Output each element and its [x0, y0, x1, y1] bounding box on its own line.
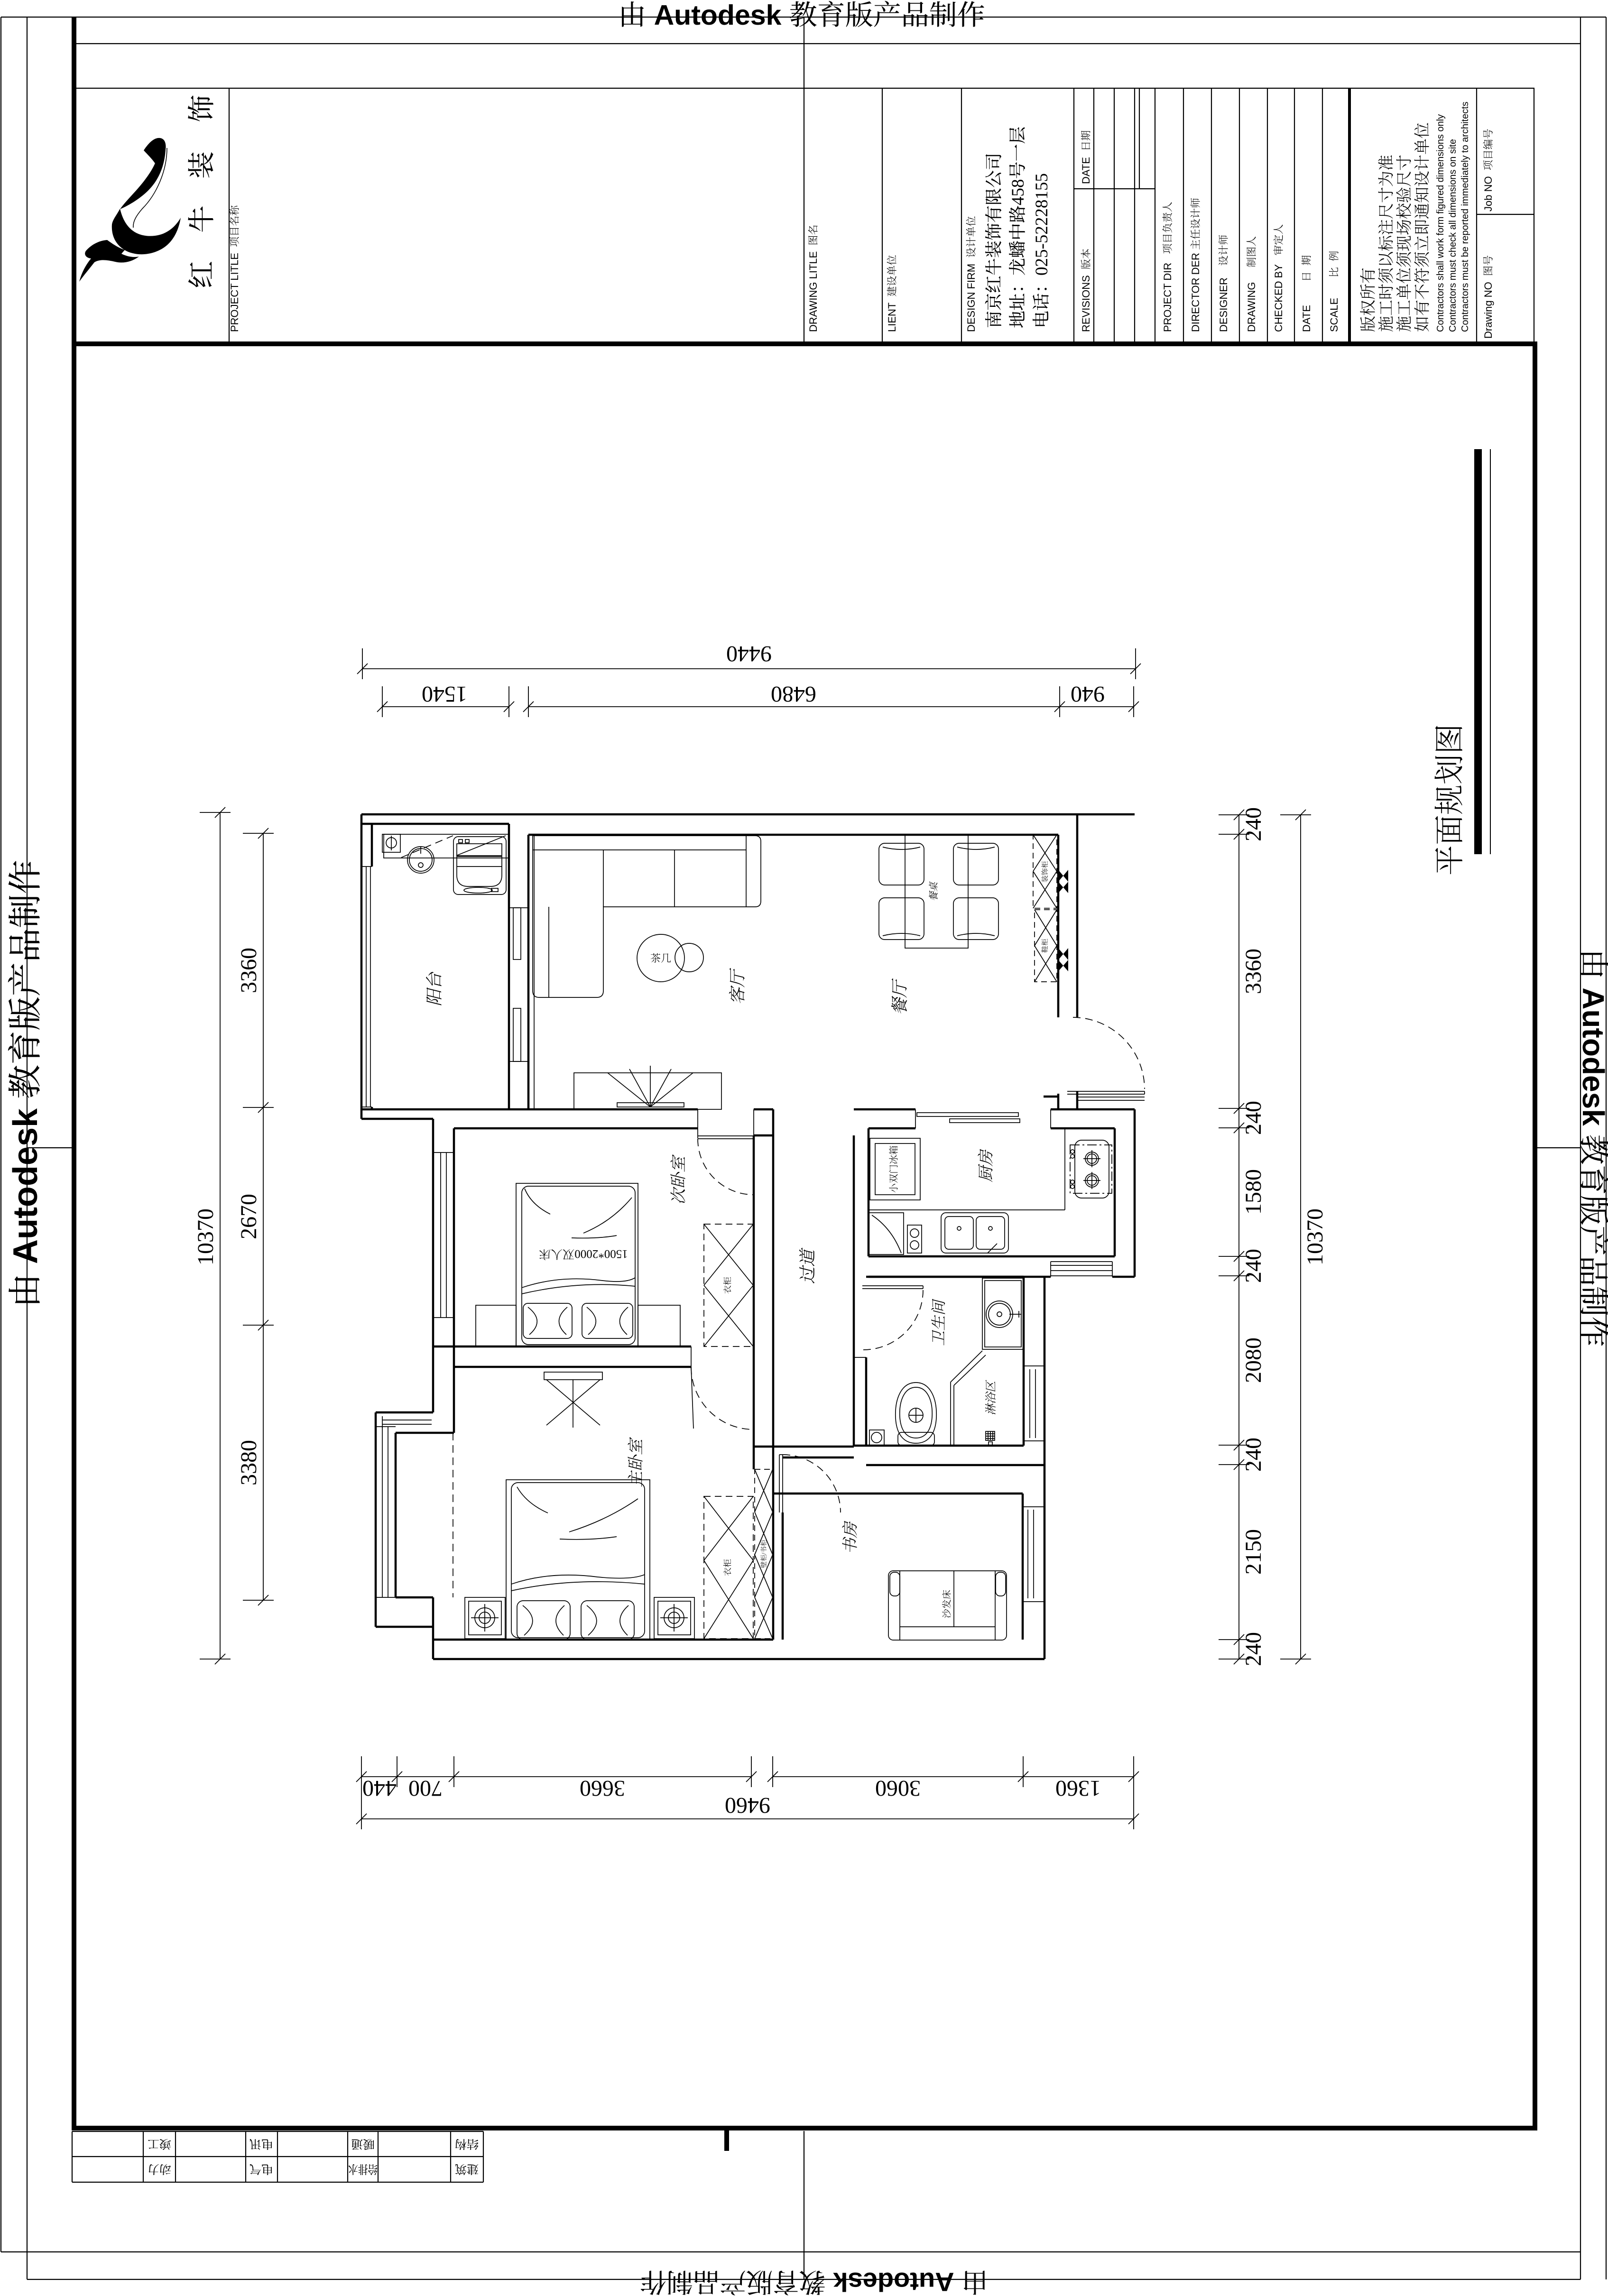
- svg-text:3380: 3380: [236, 1440, 261, 1485]
- svg-text:9440: 9440: [726, 641, 772, 666]
- svg-text:过道: 过道: [798, 1247, 817, 1284]
- svg-text:施工单位须现场校验尺寸: 施工单位须现场校验尺寸: [1396, 155, 1414, 332]
- svg-text:饰: 饰: [186, 95, 217, 122]
- svg-text:6480: 6480: [771, 682, 816, 707]
- svg-text:衣柜: 衣柜: [723, 1559, 732, 1576]
- svg-text:Contractors must check all dim: Contractors must check all dimensions on…: [1448, 139, 1458, 332]
- svg-text:3060: 3060: [875, 1776, 921, 1801]
- svg-text:动力: 动力: [148, 2162, 171, 2175]
- svg-text:鞋柜: 鞋柜: [1041, 939, 1049, 953]
- svg-text:衣柜: 衣柜: [723, 1277, 732, 1294]
- svg-text:240: 240: [1241, 1249, 1266, 1283]
- svg-text:LIENT 建设单位: LIENT 建设单位: [886, 255, 898, 332]
- svg-text:版权所有: 版权所有: [1360, 267, 1377, 332]
- svg-text:700: 700: [408, 1776, 443, 1801]
- svg-text:DESIGNER 设计师: DESIGNER 设计师: [1218, 235, 1229, 332]
- svg-text:牛: 牛: [186, 205, 217, 233]
- svg-text:竣工: 竣工: [148, 2137, 171, 2150]
- svg-text:10370: 10370: [193, 1208, 218, 1265]
- svg-text:平面规划图: 平面规划图: [1433, 724, 1467, 876]
- svg-text:装: 装: [186, 151, 217, 179]
- svg-text:电讯: 电讯: [250, 2137, 273, 2150]
- svg-text:Drawing NO 图号: Drawing NO 图号: [1482, 255, 1494, 339]
- svg-text:由 Autodesk 教育版产品制作: 由 Autodesk 教育版产品制作: [7, 860, 45, 1308]
- svg-text:地址：龙蟠中路458号一层: 地址：龙蟠中路458号一层: [1008, 127, 1028, 329]
- svg-text:暖通: 暖通: [351, 2137, 375, 2150]
- svg-text:建筑: 建筑: [455, 2162, 479, 2175]
- svg-text:REVISIONS 版本: REVISIONS 版本: [1080, 249, 1092, 332]
- svg-text:淋浴区: 淋浴区: [985, 1380, 998, 1415]
- svg-text:由 Autodesk 教育版产品制作: 由 Autodesk 教育版产品制作: [640, 2267, 988, 2296]
- svg-text:2080: 2080: [1241, 1337, 1266, 1383]
- svg-text:1360: 1360: [1055, 1776, 1101, 1801]
- svg-text:PROJECT LITLE 项目名称: PROJECT LITLE 项目名称: [229, 205, 240, 332]
- svg-text:DATE 日期: DATE 日期: [1080, 130, 1092, 184]
- svg-text:DESIGN FIRM 设计单位: DESIGN FIRM 设计单位: [965, 216, 977, 332]
- svg-text:3360: 3360: [1241, 949, 1266, 994]
- svg-text:240: 240: [1241, 1101, 1266, 1135]
- svg-text:DRAWING LITLE 图名: DRAWING LITLE 图名: [807, 224, 819, 332]
- svg-text:SCALE 比 例: SCALE 比 例: [1328, 251, 1340, 332]
- svg-text:Contractors must be reported i: Contractors must be reported immediately…: [1460, 101, 1470, 332]
- svg-text:Job NO 项目编号: Job NO 项目编号: [1482, 129, 1494, 212]
- svg-text:1540: 1540: [422, 682, 467, 707]
- svg-text:卫生间: 卫生间: [930, 1299, 947, 1346]
- svg-text:客厅: 客厅: [728, 968, 747, 1005]
- svg-text:小双门冰箱: 小双门冰箱: [889, 1145, 899, 1193]
- svg-text:1580: 1580: [1241, 1169, 1266, 1215]
- svg-text:次卧室: 次卧室: [670, 1154, 688, 1205]
- svg-text:餐桌: 餐桌: [929, 881, 939, 901]
- svg-text:3660: 3660: [580, 1776, 625, 1801]
- svg-text:主卧室: 主卧室: [628, 1437, 645, 1487]
- svg-text:壁柜/书柜: 壁柜/书柜: [760, 1540, 768, 1568]
- svg-text:2150: 2150: [1241, 1529, 1266, 1575]
- svg-text:厨房: 厨房: [978, 1149, 995, 1182]
- svg-text:装饰柜: 装饰柜: [1041, 861, 1049, 882]
- svg-text:Contractors shall work form fi: Contractors shall work form figured dime…: [1435, 114, 1446, 332]
- svg-text:南京红牛装饰有限公司: 南京红牛装饰有限公司: [985, 153, 1004, 328]
- svg-text:电话：025-52228155: 电话：025-52228155: [1032, 173, 1052, 328]
- svg-text:书房: 书房: [842, 1521, 859, 1554]
- svg-text:DATE 日 期: DATE 日 期: [1301, 255, 1312, 332]
- svg-text:由 Autodesk 教育版产品制作: 由 Autodesk 教育版产品制作: [618, 0, 985, 31]
- svg-text:DIRECTOR DER 主任设计师: DIRECTOR DER 主任设计师: [1190, 198, 1201, 332]
- svg-text:DRAWING 制图人: DRAWING 制图人: [1246, 236, 1257, 332]
- svg-text:240: 240: [1241, 1438, 1266, 1472]
- svg-text:茶几: 茶几: [650, 952, 671, 964]
- svg-text:440: 440: [362, 1776, 397, 1801]
- svg-text:红: 红: [186, 261, 217, 288]
- svg-text:沙发床: 沙发床: [942, 1590, 952, 1618]
- svg-text:如有不符须立即通知设计单位: 如有不符须立即通知设计单位: [1414, 122, 1432, 332]
- svg-text:10370: 10370: [1303, 1208, 1328, 1265]
- svg-text:240: 240: [1241, 807, 1266, 841]
- svg-text:PROJECT DIR 项目负责人: PROJECT DIR 项目负责人: [1162, 202, 1174, 332]
- svg-text:3360: 3360: [236, 948, 261, 993]
- svg-text:240: 240: [1241, 1632, 1266, 1666]
- svg-text:施工时须以标注尺寸为准: 施工时须以标注尺寸为准: [1378, 155, 1395, 332]
- svg-text:电气: 电气: [250, 2162, 273, 2176]
- svg-text:阳台: 阳台: [425, 972, 444, 1006]
- svg-text:给排水: 给排水: [348, 2162, 378, 2176]
- svg-text:1500*2000双人床: 1500*2000双人床: [539, 1247, 628, 1260]
- svg-text:结构: 结构: [455, 2137, 479, 2150]
- svg-text:9460: 9460: [725, 1793, 770, 1818]
- svg-text:940: 940: [1071, 682, 1105, 707]
- svg-text:2670: 2670: [236, 1194, 261, 1239]
- svg-text:餐厅: 餐厅: [890, 978, 909, 1015]
- svg-text:CHECKED BY 审定人: CHECKED BY 审定人: [1273, 224, 1285, 332]
